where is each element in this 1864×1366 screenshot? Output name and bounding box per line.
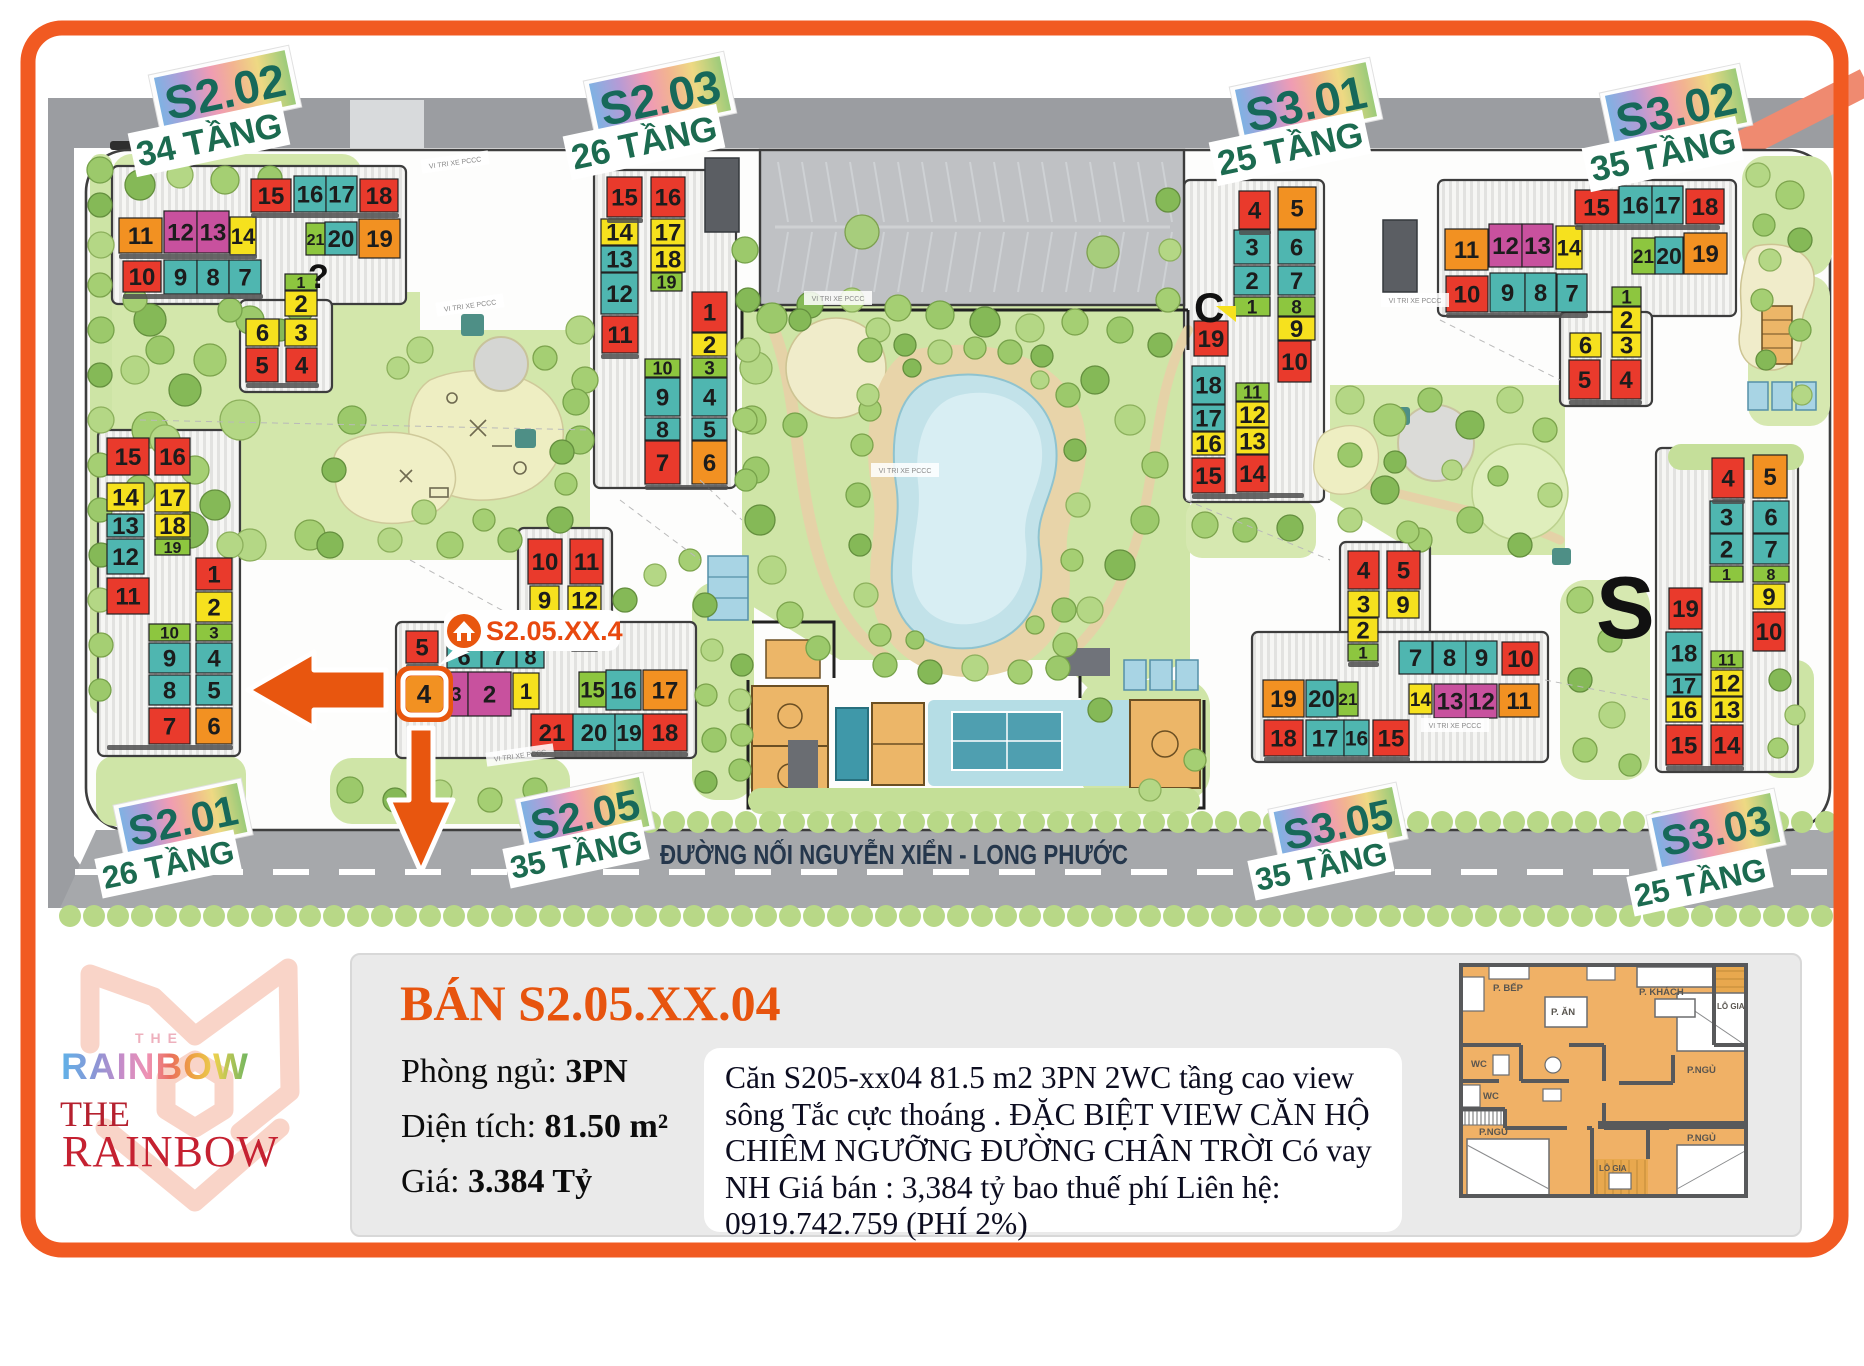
svg-text:1: 1 (1722, 567, 1731, 584)
svg-text:10: 10 (1756, 619, 1783, 646)
svg-text:11: 11 (115, 584, 140, 611)
svg-text:13: 13 (1239, 429, 1266, 456)
svg-text:LÔ GIA: LÔ GIA (1717, 1002, 1745, 1011)
svg-text:1: 1 (1621, 287, 1632, 308)
svg-text:9: 9 (163, 646, 176, 673)
svg-text:6: 6 (1764, 505, 1777, 532)
svg-text:1: 1 (1358, 644, 1367, 663)
svg-text:17: 17 (1654, 193, 1681, 220)
svg-text:18: 18 (652, 720, 679, 747)
svg-text:7: 7 (656, 450, 669, 477)
svg-text:2: 2 (294, 291, 307, 318)
svg-text:14: 14 (1410, 690, 1432, 711)
svg-text:11: 11 (607, 322, 632, 349)
svg-text:3: 3 (1620, 333, 1633, 360)
svg-text:20: 20 (581, 720, 608, 747)
svg-text:16: 16 (1622, 193, 1649, 220)
svg-text:15: 15 (1378, 726, 1405, 753)
svg-text:16: 16 (1195, 431, 1222, 458)
svg-text:P.NGỦ: P.NGỦ (1687, 1064, 1716, 1076)
svg-text:9: 9 (1475, 645, 1488, 672)
svg-text:VI TRI XE PCCC: VI TRI XE PCCC (879, 468, 932, 475)
svg-text:13: 13 (1524, 233, 1551, 260)
svg-text:8: 8 (206, 265, 219, 292)
svg-text:LÔ GIA: LÔ GIA (1599, 1164, 1627, 1173)
svg-text:10: 10 (1454, 282, 1481, 309)
svg-text:13: 13 (1714, 697, 1741, 724)
svg-text:15: 15 (1583, 195, 1610, 222)
svg-text:15: 15 (611, 185, 638, 212)
svg-text:5: 5 (1763, 464, 1776, 491)
svg-text:4: 4 (1248, 198, 1262, 225)
svg-text:15: 15 (1195, 463, 1222, 490)
svg-text:18: 18 (1270, 726, 1297, 753)
svg-text:20: 20 (328, 226, 355, 253)
svg-text:17: 17 (655, 220, 682, 247)
svg-text:5: 5 (1578, 367, 1591, 394)
svg-text:13: 13 (200, 220, 227, 247)
svg-text:14: 14 (606, 220, 633, 247)
svg-text:15: 15 (115, 444, 142, 471)
svg-text:4: 4 (703, 385, 717, 412)
svg-text:19: 19 (656, 272, 676, 292)
svg-text:6: 6 (207, 714, 220, 741)
svg-text:7: 7 (1409, 645, 1422, 672)
svg-text:7: 7 (163, 714, 176, 741)
svg-text:13: 13 (112, 513, 139, 540)
svg-text:S2.05.XX.4: S2.05.XX.4 (486, 616, 623, 646)
svg-text:17: 17 (159, 485, 186, 512)
svg-text:20: 20 (1656, 243, 1682, 269)
svg-text:1: 1 (703, 300, 716, 327)
svg-text:16: 16 (159, 444, 186, 471)
svg-text:2: 2 (1245, 268, 1258, 295)
svg-text:9: 9 (1396, 592, 1409, 619)
svg-text:VI TRI XE PCCC: VI TRI XE PCCC (812, 296, 865, 303)
svg-text:5: 5 (415, 635, 428, 662)
svg-text:C: C (1194, 284, 1224, 331)
svg-text:12: 12 (167, 220, 194, 247)
svg-text:5: 5 (255, 353, 268, 380)
svg-text:19: 19 (366, 226, 393, 253)
svg-text:19: 19 (164, 540, 182, 557)
svg-text:1: 1 (520, 679, 532, 704)
svg-text:12: 12 (1468, 689, 1495, 716)
svg-text:5: 5 (207, 678, 220, 705)
svg-text:4: 4 (417, 679, 432, 709)
svg-text:WC: WC (1483, 1091, 1499, 1102)
svg-text:21: 21 (539, 720, 566, 747)
svg-text:5: 5 (703, 416, 716, 442)
svg-text:VI TRI XE PCCC: VI TRI XE PCCC (1389, 298, 1442, 305)
svg-text:7: 7 (238, 265, 251, 292)
svg-text:3: 3 (1357, 592, 1370, 619)
svg-text:9: 9 (656, 385, 669, 412)
svg-text:21: 21 (307, 232, 325, 249)
svg-text:4: 4 (1721, 466, 1735, 493)
svg-text:2: 2 (207, 595, 220, 622)
svg-text:19: 19 (616, 720, 642, 746)
svg-text:5: 5 (1290, 196, 1303, 223)
svg-text:8: 8 (656, 416, 669, 442)
svg-text:13: 13 (606, 247, 633, 274)
svg-text:9: 9 (1290, 316, 1303, 343)
svg-text:6: 6 (703, 450, 716, 477)
svg-text:P.NGỦ: P.NGỦ (1687, 1132, 1716, 1144)
svg-text:4: 4 (295, 353, 309, 380)
svg-text:18: 18 (1671, 641, 1698, 668)
svg-text:17: 17 (1312, 726, 1339, 753)
svg-text:17: 17 (652, 678, 679, 705)
svg-text:16: 16 (297, 182, 324, 209)
svg-text:11: 11 (574, 549, 599, 576)
svg-text:4: 4 (1619, 367, 1633, 394)
svg-text:4: 4 (1357, 558, 1371, 585)
svg-text:18: 18 (1692, 194, 1719, 221)
svg-text:2: 2 (483, 682, 496, 709)
svg-text:15: 15 (258, 183, 285, 210)
svg-text:15: 15 (1671, 733, 1698, 760)
svg-text:1: 1 (1247, 297, 1258, 318)
svg-text:5: 5 (1397, 558, 1410, 585)
svg-text:21: 21 (1633, 247, 1655, 268)
svg-text:11: 11 (128, 223, 153, 250)
svg-text:10: 10 (160, 624, 179, 643)
svg-text:12: 12 (1714, 671, 1741, 698)
svg-text:8: 8 (163, 678, 176, 705)
svg-text:?: ? (308, 258, 329, 296)
svg-text:8: 8 (1767, 567, 1776, 584)
svg-text:ĐƯỜNG NỐI NGUYỄN XIỂN - LONG P: ĐƯỜNG NỐI NGUYỄN XIỂN - LONG PHƯỚC (660, 838, 1128, 870)
svg-text:16: 16 (1671, 697, 1698, 724)
svg-text:P. ĂN: P. ĂN (1551, 1007, 1575, 1018)
svg-text:VI TRI XE PCCC: VI TRI XE PCCC (1429, 723, 1482, 730)
svg-text:12: 12 (112, 544, 139, 571)
svg-text:7: 7 (1290, 268, 1303, 295)
svg-text:14: 14 (1557, 235, 1582, 260)
svg-text:12: 12 (1239, 402, 1266, 429)
svg-text:10: 10 (652, 358, 672, 378)
svg-text:14: 14 (1239, 461, 1266, 488)
svg-text:1: 1 (207, 562, 220, 589)
svg-text:20: 20 (1308, 686, 1335, 713)
svg-text:2: 2 (703, 332, 716, 359)
svg-text:18: 18 (655, 247, 682, 274)
svg-text:P. BẾP: P. BẾP (1493, 983, 1524, 994)
svg-text:9: 9 (1501, 280, 1514, 307)
svg-text:14: 14 (231, 224, 256, 249)
svg-text:21: 21 (1339, 690, 1358, 709)
svg-text:10: 10 (129, 264, 156, 291)
svg-text:6: 6 (256, 320, 269, 347)
svg-text:12: 12 (606, 281, 633, 308)
svg-text:17: 17 (1672, 673, 1696, 698)
svg-text:16: 16 (1345, 728, 1368, 751)
svg-text:14: 14 (112, 485, 139, 512)
svg-text:11: 11 (1718, 651, 1736, 670)
svg-text:17: 17 (1195, 406, 1222, 433)
svg-text:19: 19 (1672, 596, 1699, 623)
svg-text:17: 17 (328, 182, 355, 209)
svg-text:7: 7 (1565, 281, 1578, 308)
svg-text:19: 19 (1692, 241, 1719, 268)
svg-text:1: 1 (297, 275, 306, 292)
svg-text:3: 3 (704, 358, 715, 379)
svg-text:P. KHÁCH: P. KHÁCH (1639, 987, 1684, 998)
svg-text:10: 10 (532, 549, 559, 576)
svg-text:3: 3 (294, 320, 307, 347)
svg-text:2: 2 (1720, 537, 1733, 564)
svg-text:19: 19 (1270, 686, 1297, 713)
svg-text:11: 11 (1454, 237, 1479, 264)
svg-text:11: 11 (1506, 688, 1531, 715)
svg-text:11: 11 (1243, 382, 1262, 402)
svg-text:18: 18 (1195, 373, 1222, 400)
svg-text:14: 14 (1714, 733, 1741, 760)
svg-text:12: 12 (1492, 233, 1519, 260)
svg-text:13: 13 (1437, 689, 1464, 716)
svg-text:16: 16 (655, 185, 682, 212)
svg-text:9: 9 (174, 265, 187, 292)
svg-text:6: 6 (1579, 333, 1592, 360)
svg-text:WC: WC (1471, 1059, 1487, 1070)
svg-text:16: 16 (610, 678, 637, 705)
svg-text:3: 3 (209, 624, 218, 643)
svg-text:10: 10 (1281, 349, 1308, 376)
svg-text:18: 18 (366, 183, 393, 210)
svg-text:S: S (1596, 558, 1655, 657)
svg-text:3: 3 (1720, 505, 1733, 532)
svg-text:15: 15 (580, 677, 604, 702)
svg-text:8: 8 (1443, 645, 1456, 672)
svg-text:10: 10 (1507, 646, 1534, 673)
svg-text:4: 4 (207, 646, 221, 673)
svg-text:6: 6 (1290, 235, 1303, 262)
svg-text:2: 2 (1356, 618, 1369, 645)
svg-text:P.NGỦ: P.NGỦ (1479, 1126, 1508, 1138)
svg-text:3: 3 (1245, 235, 1258, 262)
svg-text:7: 7 (1764, 537, 1777, 564)
svg-text:2: 2 (1620, 307, 1633, 334)
svg-text:8: 8 (1534, 280, 1547, 307)
svg-text:9: 9 (1762, 584, 1775, 611)
svg-text:18: 18 (159, 513, 186, 540)
